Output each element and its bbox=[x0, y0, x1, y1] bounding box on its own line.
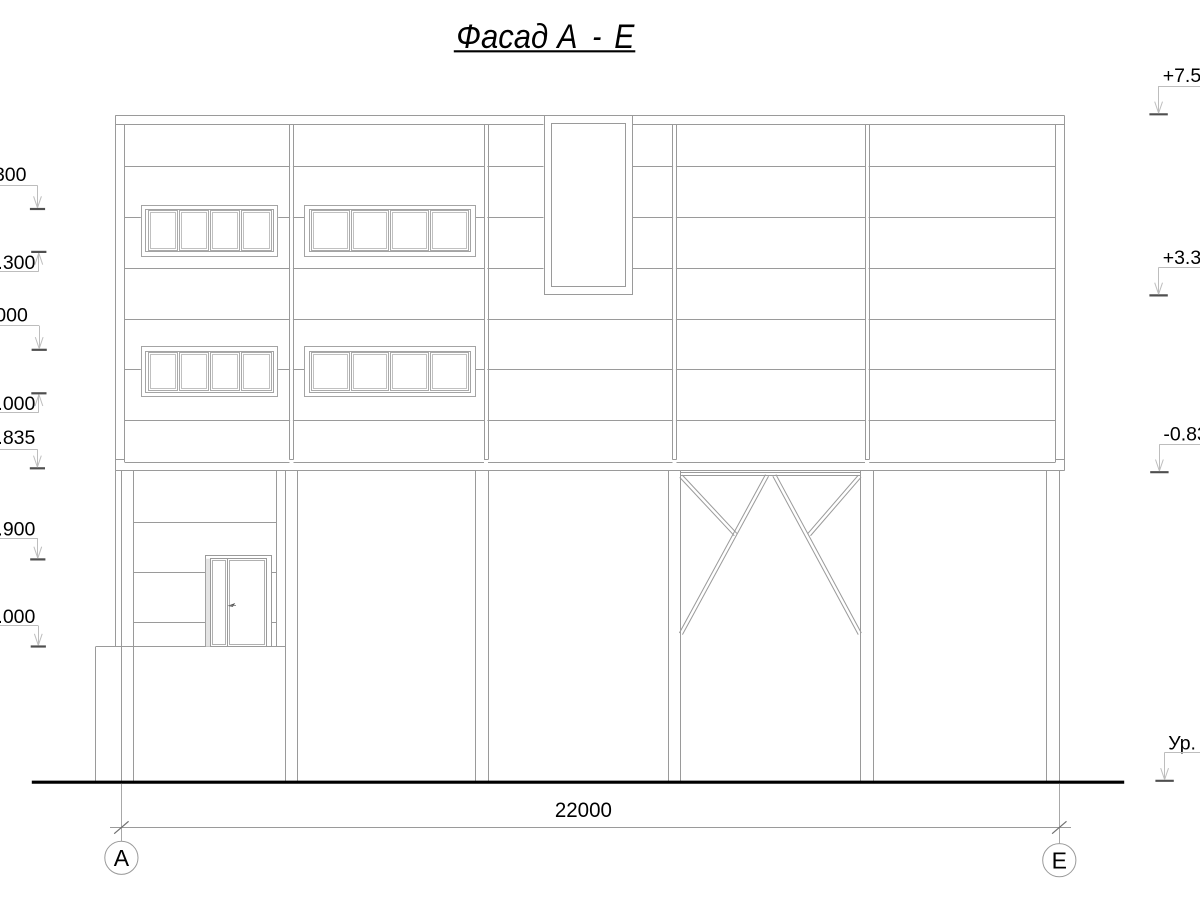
svg-text:.835: .835 bbox=[0, 427, 36, 449]
svg-text:+3.300: +3.300 bbox=[1163, 247, 1200, 269]
svg-text:.900: .900 bbox=[0, 519, 36, 541]
svg-text:300: 300 bbox=[0, 164, 27, 186]
svg-text:.000: .000 bbox=[0, 606, 36, 628]
svg-text:-0.835: -0.835 bbox=[1163, 424, 1200, 446]
svg-text:22000: 22000 bbox=[555, 799, 612, 822]
svg-text:.300: .300 bbox=[0, 252, 36, 274]
svg-text:.000: .000 bbox=[0, 393, 36, 415]
svg-text:А: А bbox=[114, 845, 130, 871]
svg-text:Е: Е bbox=[1052, 847, 1067, 873]
svg-text:Ур. з: Ур. з bbox=[1168, 732, 1200, 754]
svg-text:+7.500: +7.500 bbox=[1163, 65, 1200, 87]
svg-text:000: 000 bbox=[0, 305, 28, 327]
